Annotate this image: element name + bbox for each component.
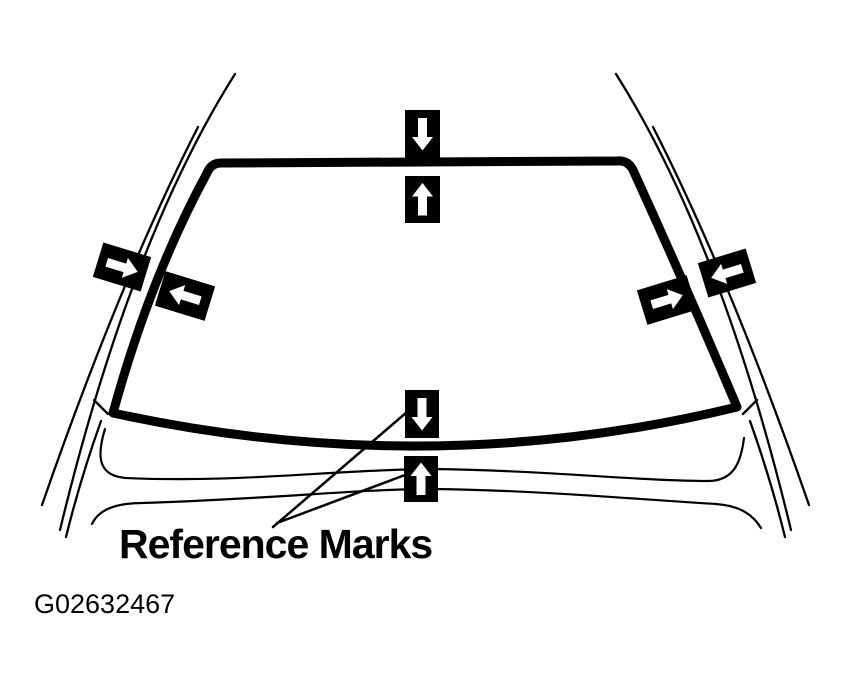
top-glass-mark bbox=[405, 176, 440, 223]
diagram-line-art bbox=[0, 0, 853, 684]
right-glass-mark bbox=[637, 275, 697, 325]
left-corner-tick bbox=[94, 400, 108, 414]
reference-marks-label: Reference Marks bbox=[119, 521, 432, 568]
leader-line-lower bbox=[277, 475, 405, 523]
bottom-glass-mark bbox=[405, 390, 439, 438]
windshield-reference-marks-diagram: Reference Marks G02632467 bbox=[0, 0, 853, 684]
top-body-mark bbox=[405, 110, 440, 158]
figure-id: G02632467 bbox=[34, 589, 175, 620]
right-corner-tick bbox=[743, 400, 757, 414]
left-glass-mark bbox=[155, 271, 215, 321]
left-body-mark bbox=[93, 242, 151, 291]
bottom-cowl-mark bbox=[404, 456, 438, 502]
